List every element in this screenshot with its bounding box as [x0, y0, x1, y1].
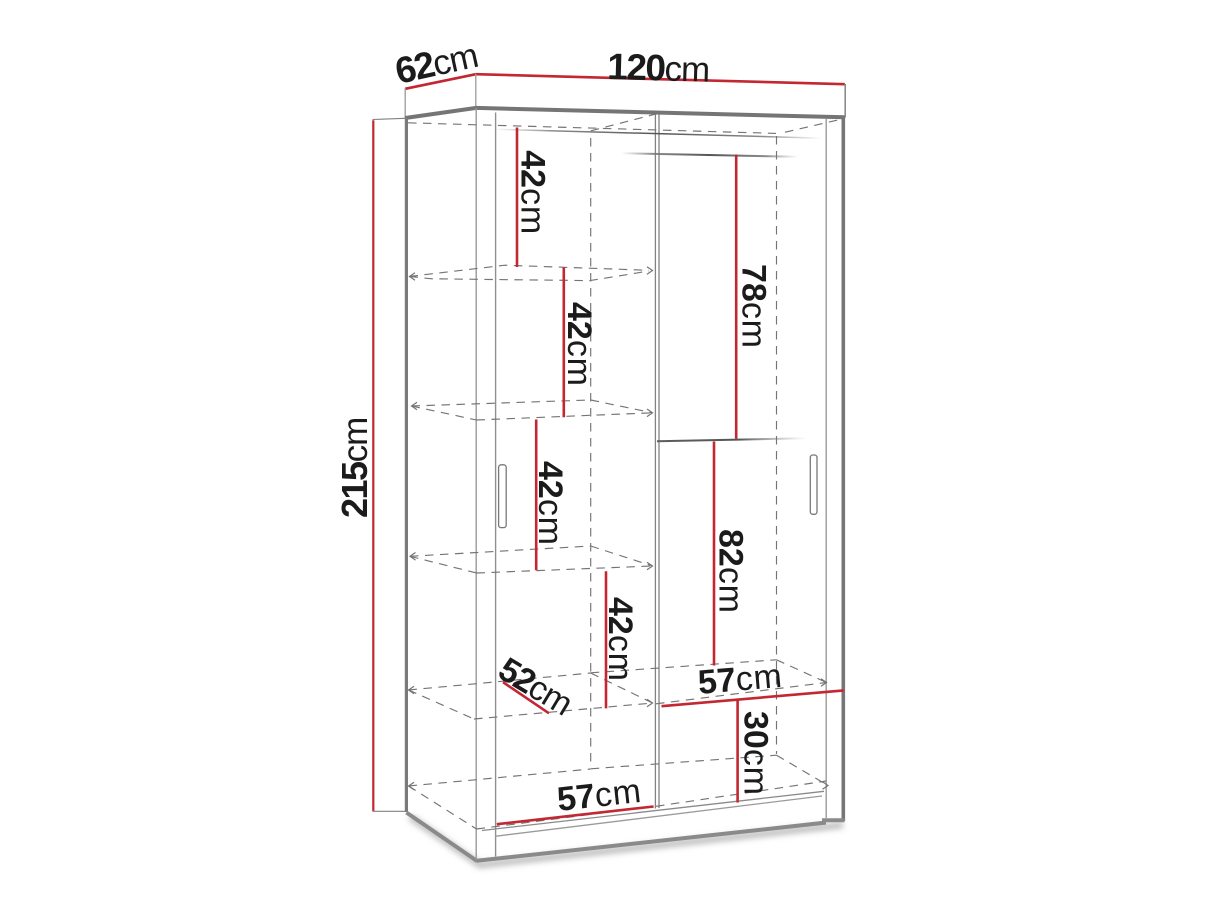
svg-text:78cm: 78cm — [735, 264, 773, 349]
svg-text:215cm: 215cm — [334, 418, 375, 518]
svg-text:30cm: 30cm — [737, 711, 775, 796]
svg-text:120cm: 120cm — [607, 46, 710, 90]
svg-text:62cm: 62cm — [391, 34, 481, 92]
svg-text:57cm: 57cm — [555, 772, 643, 819]
svg-text:42cm: 42cm — [601, 597, 639, 682]
svg-text:52cm: 52cm — [492, 650, 579, 723]
svg-text:57cm: 57cm — [696, 657, 784, 702]
svg-text:42cm: 42cm — [514, 150, 552, 235]
svg-text:82cm: 82cm — [712, 529, 750, 614]
svg-text:42cm: 42cm — [560, 302, 598, 387]
svg-text:42cm: 42cm — [531, 461, 569, 546]
